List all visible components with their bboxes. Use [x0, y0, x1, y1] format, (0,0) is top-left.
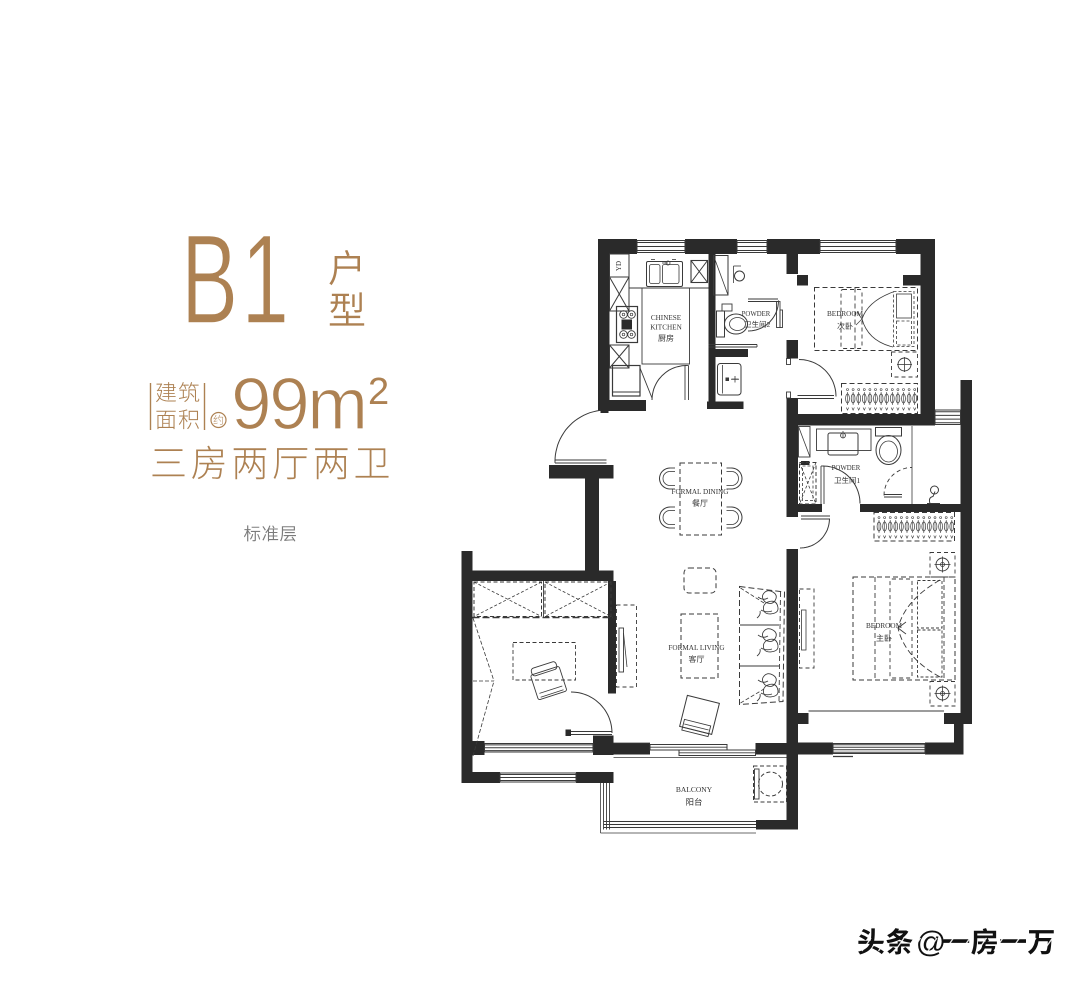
- svg-text:FORMAL DINING: FORMAL DINING: [671, 488, 728, 496]
- svg-text:99m: 99m: [231, 364, 368, 445]
- svg-text:2: 2: [368, 371, 389, 413]
- svg-text:YD: YD: [615, 261, 623, 271]
- svg-text:KITCHEN: KITCHEN: [650, 324, 682, 332]
- svg-text:POWDER: POWDER: [742, 311, 771, 318]
- svg-text:BALCONY: BALCONY: [676, 785, 713, 794]
- svg-text:BEDROOM: BEDROOM: [827, 310, 864, 318]
- svg-text:FORMAL LIVING: FORMAL LIVING: [668, 644, 724, 652]
- svg-text:B1: B1: [181, 208, 289, 350]
- svg-text:1: 1: [857, 476, 861, 485]
- svg-text:CHINESE: CHINESE: [651, 314, 682, 322]
- svg-text:@: @: [916, 926, 946, 959]
- svg-text:BEDROOM: BEDROOM: [866, 622, 903, 630]
